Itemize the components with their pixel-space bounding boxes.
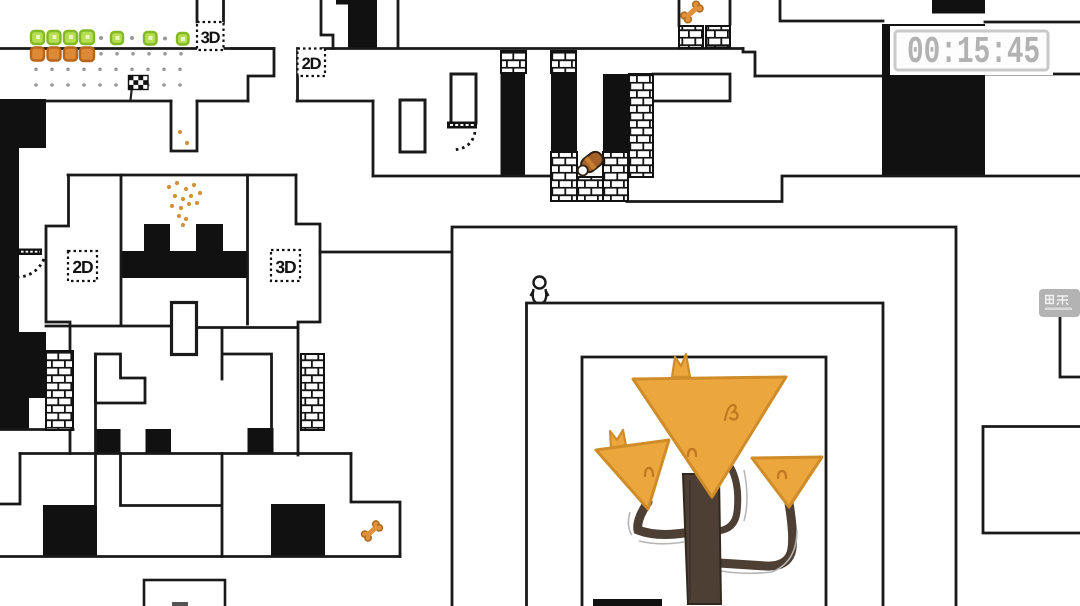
- svg-text:3D: 3D: [275, 257, 296, 277]
- svg-text:00:15:45: 00:15:45: [907, 31, 1040, 74]
- svg-text:2D: 2D: [302, 55, 322, 73]
- svg-text:3D: 3D: [201, 29, 221, 47]
- svg-text:2D: 2D: [72, 257, 93, 277]
